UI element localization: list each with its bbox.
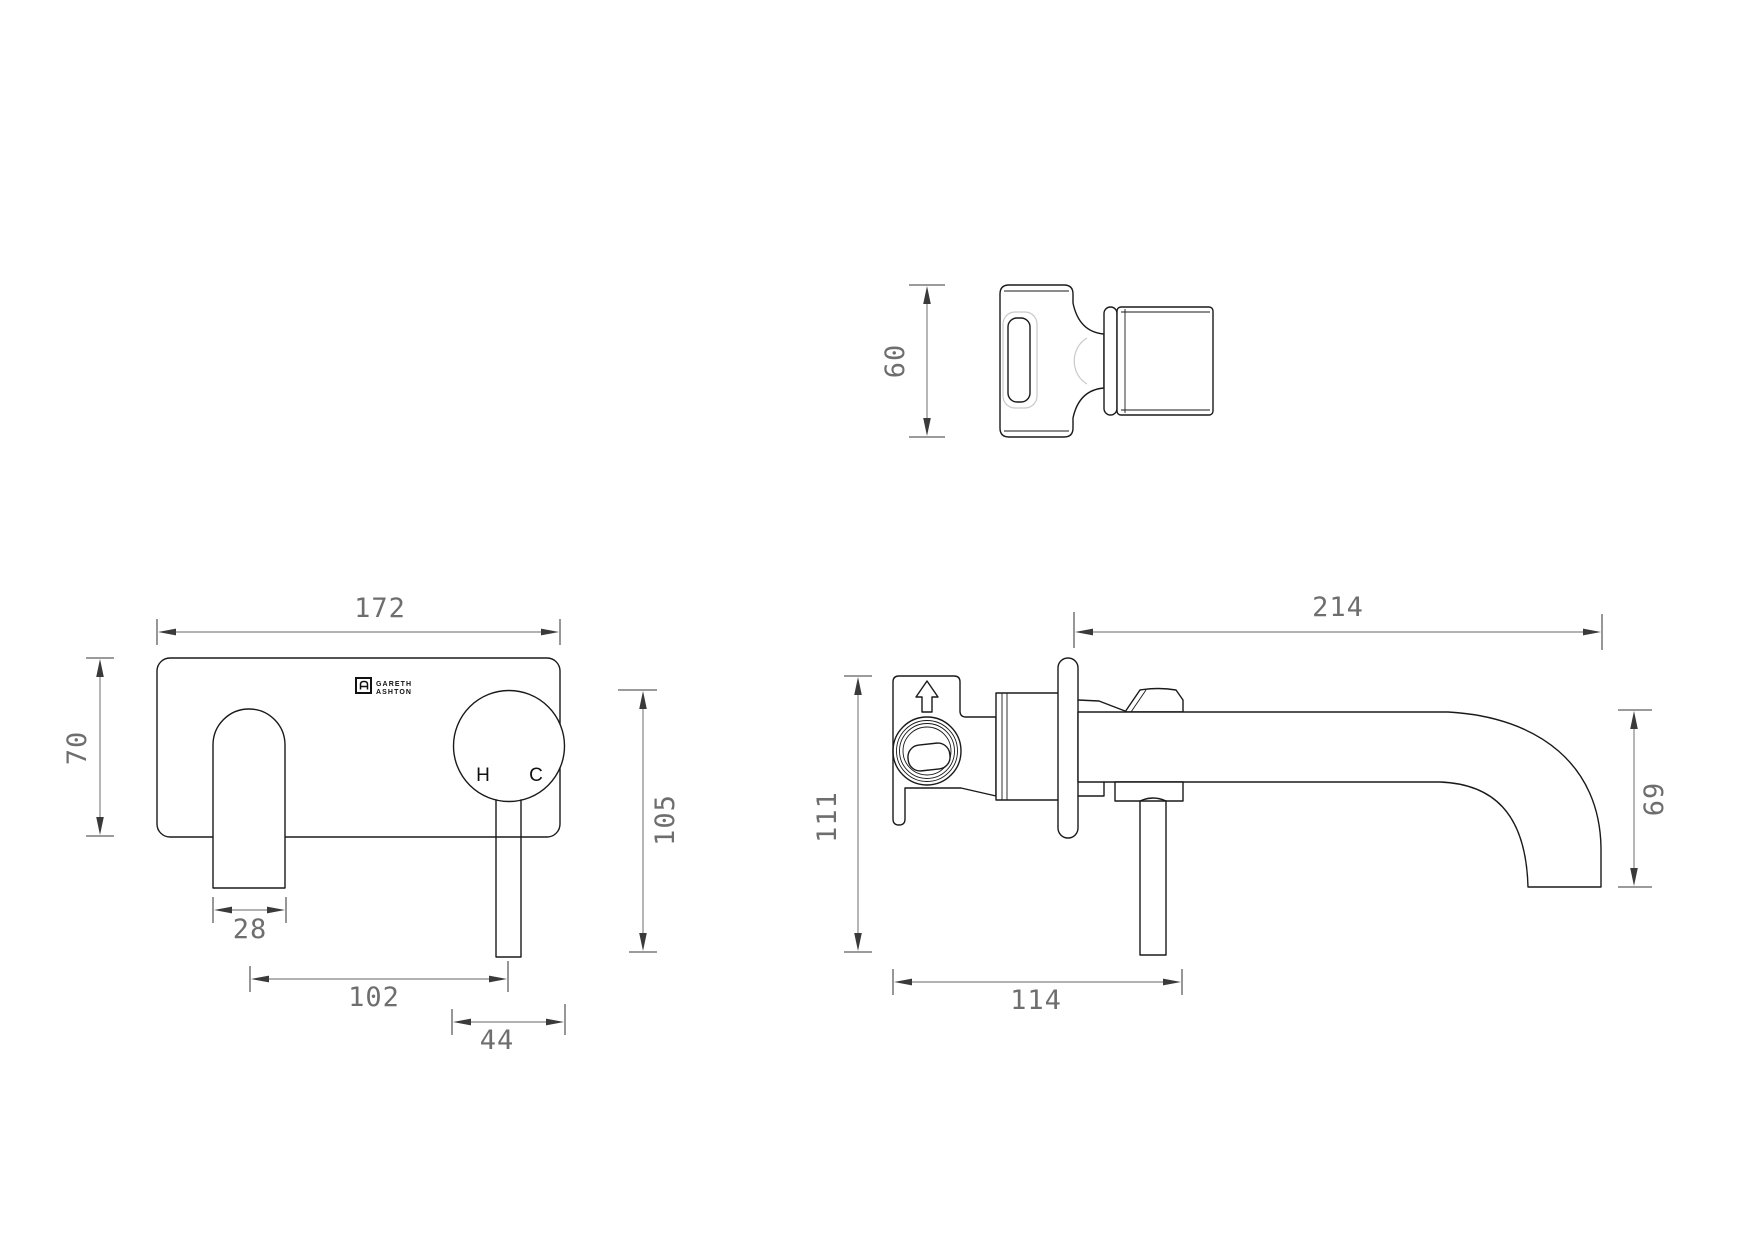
dim-spout-drop-69: 69	[1618, 710, 1670, 887]
spout-front	[213, 709, 285, 888]
dim-102-text: 102	[348, 982, 400, 1013]
dim-69-arrow-up	[1630, 711, 1638, 729]
dim-60-text: 60	[880, 344, 911, 379]
brand-name-line1: GARETH	[376, 681, 412, 688]
dim-depth-60: 60	[880, 285, 945, 437]
cold-indicator: C	[529, 765, 543, 786]
dim-44-text: 44	[480, 1025, 515, 1056]
dim-105-arrow-up	[639, 691, 647, 709]
wall-plate-side	[1058, 658, 1078, 838]
valve-cylinder	[996, 693, 1059, 800]
dim-69-text: 69	[1639, 782, 1670, 817]
dim-reach-214: 214	[1074, 592, 1602, 650]
dim-172-arrow-right	[541, 629, 559, 636]
dim-69-arrow-down	[1630, 868, 1638, 886]
dim-114-arrow-left	[894, 979, 912, 986]
brand-name-line2: ASHTON	[376, 689, 412, 696]
dim-70-arrow-up	[96, 659, 104, 677]
dim-111-text: 111	[812, 791, 843, 843]
dim-plate-height-70: 70	[62, 658, 114, 836]
dim-60-arrow-up	[923, 286, 931, 304]
dim-70-arrow-down	[96, 817, 104, 835]
dim-172-text: 172	[354, 593, 406, 624]
dim-60-arrow-down	[923, 418, 931, 436]
dim-28-arrow-left	[214, 907, 232, 914]
side-view: 214 111 69 114	[812, 592, 1670, 1016]
dim-70-text: 70	[62, 731, 93, 766]
dim-111-arrow-down	[854, 933, 862, 951]
dim-114-arrow-right	[1163, 979, 1181, 986]
handle-escutcheon	[454, 691, 565, 802]
dim-handle-height-105: 105	[618, 690, 681, 952]
dim-body-height-111: 111	[812, 676, 872, 952]
handle-base-block	[1115, 782, 1183, 801]
dim-214-arrow-left	[1075, 629, 1093, 636]
technical-drawing: 60 GARETH ASHTON H C 172	[0, 0, 1755, 1240]
hot-indicator: H	[476, 765, 490, 786]
dim-spout-width-28: 28	[213, 897, 286, 945]
dim-214-arrow-right	[1583, 629, 1601, 636]
dim-28-arrow-right	[267, 907, 285, 914]
dim-44-arrow-right	[546, 1019, 564, 1026]
top-view: 60	[880, 285, 1213, 437]
front-view: GARETH ASHTON H C 172 70	[62, 593, 681, 1056]
dim-114-text: 114	[1010, 985, 1062, 1016]
valve-body-outline	[1000, 285, 1104, 437]
dim-105-text: 105	[650, 794, 681, 846]
collar-top-stub	[1078, 700, 1125, 711]
dim-214-text: 214	[1312, 592, 1364, 623]
handle-collar-ring	[1104, 307, 1117, 415]
dim-44-arrow-left	[453, 1019, 471, 1026]
dim-105-arrow-down	[639, 933, 647, 951]
inlet-port	[907, 742, 951, 772]
dim-102-arrow-left	[251, 976, 269, 983]
handle-grip	[1117, 307, 1213, 415]
collar-bottom-stub	[1078, 782, 1104, 796]
dim-172-arrow-left	[158, 629, 176, 636]
dim-spout-to-handle-102: 102	[250, 961, 508, 1013]
dim-depth-114: 114	[893, 969, 1182, 1016]
dim-102-arrow-right	[489, 976, 507, 983]
handle-lever-side	[1140, 801, 1166, 955]
dim-28-text: 28	[233, 914, 268, 945]
dim-plate-width-172: 172	[157, 593, 560, 645]
dim-handle-diameter-44: 44	[452, 1004, 565, 1056]
dim-111-arrow-up	[854, 677, 862, 695]
